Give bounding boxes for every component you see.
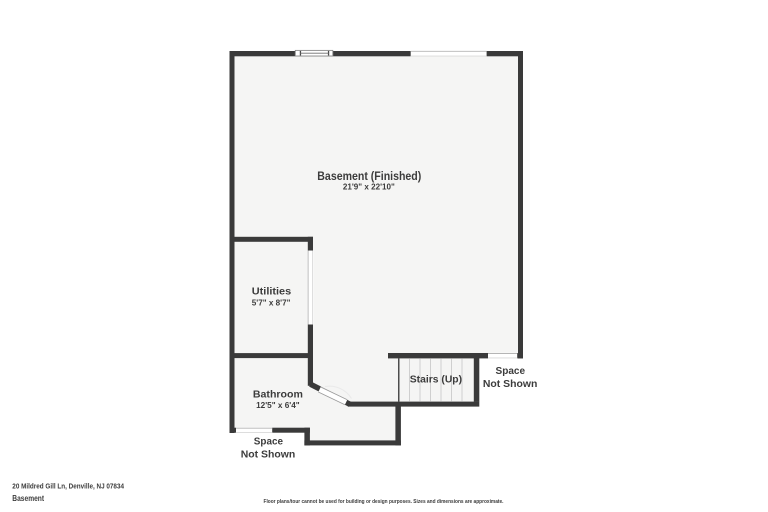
svg-text:Bathroom: Bathroom — [253, 389, 303, 400]
svg-text:Utilities: Utilities — [252, 287, 292, 298]
svg-text:5'7" x 8'7": 5'7" x 8'7" — [252, 299, 291, 308]
svg-text:Basement: Basement — [12, 494, 44, 503]
svg-text:Space: Space — [254, 436, 284, 447]
svg-text:21'9" x 22'10": 21'9" x 22'10" — [343, 182, 395, 192]
svg-text:Space: Space — [496, 366, 526, 377]
svg-text:Not Shown: Not Shown — [241, 450, 296, 461]
svg-text:12'5" x 6'4": 12'5" x 6'4" — [256, 401, 300, 410]
svg-text:Floor plans/tour cannot be use: Floor plans/tour cannot be used for buil… — [264, 499, 505, 505]
svg-text:20 Mildred Gill Ln, Denville,: 20 Mildred Gill Ln, Denville, NJ 07834 — [12, 482, 124, 491]
svg-text:Stairs (Up): Stairs (Up) — [410, 375, 462, 386]
svg-text:Not Shown: Not Shown — [483, 379, 538, 390]
